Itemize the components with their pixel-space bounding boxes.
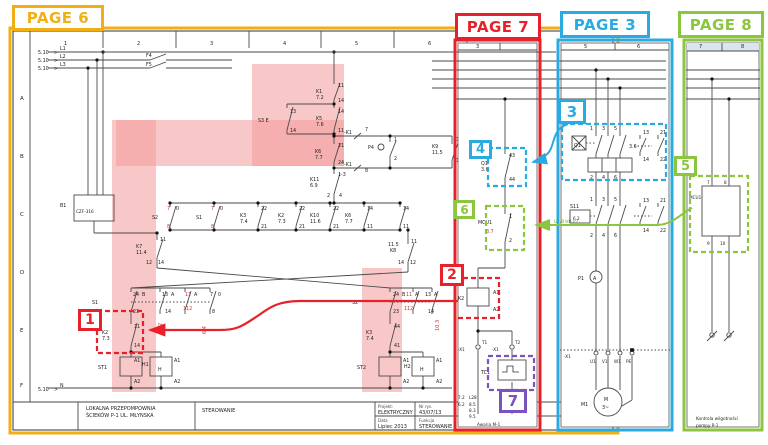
schematic-label: 6 [428, 41, 431, 47]
schematic-label: A1 [403, 358, 409, 364]
schematic-label: 3 [476, 44, 479, 50]
junction-dot [332, 102, 335, 105]
callout-7: 7 [499, 389, 527, 413]
schematic-label: 13 [290, 109, 296, 115]
schematic-label: 7.4 [366, 336, 374, 342]
schematic-label: 14 [290, 128, 296, 134]
schematic-label: 0 [176, 206, 179, 212]
schematic-label: -X1 [492, 347, 499, 352]
schematic-label: K5 [316, 116, 322, 122]
schematic-label: E [20, 328, 24, 334]
callout-6: 6 [454, 200, 475, 219]
junction-dot [168, 201, 171, 204]
schematic-label: 6 [637, 44, 640, 50]
schematic-label: 3 [210, 41, 213, 47]
schematic-label: 13 [643, 198, 649, 204]
schematic-label: A2 [403, 379, 409, 385]
junction-dot [212, 201, 215, 204]
schematic-label: 6.9 [310, 183, 318, 189]
schematic-label: 6 [614, 233, 617, 239]
schematic-label: A2 [174, 379, 180, 385]
schematic-label: 8 [167, 224, 170, 230]
schematic-label: K1 [316, 89, 322, 95]
schematic-label: 0 [218, 292, 221, 298]
schematic-label: K7 [136, 244, 142, 250]
schematic-label: Kontrola wilgotności [696, 416, 738, 421]
pe-tap-dot [630, 348, 634, 352]
schematic-label: 43/07/13 [419, 410, 441, 416]
highlight-band [362, 268, 402, 392]
junction-dot [606, 77, 609, 80]
schematic-label: S11 [570, 204, 579, 210]
schematic-label: 24 [393, 292, 399, 298]
schematic-label: 13 [162, 292, 168, 298]
annotated-schematic-screenshot: 5.10>L15.10>L25.10>L3F4F5B1CZF-31611K17.… [0, 0, 768, 445]
schematic-label: 1-3 [338, 172, 346, 178]
schematic-label: 23 [393, 309, 399, 315]
schematic-label: K9 [432, 144, 438, 150]
callout-2: 2 [440, 264, 464, 286]
schematic-label: 22 [261, 206, 267, 212]
schematic-label: 1 [64, 41, 67, 47]
schematic-label: B [402, 292, 405, 298]
schematic-label: 1 [394, 137, 397, 143]
schematic-label: > [54, 66, 58, 72]
junction-dot [155, 231, 158, 234]
junction-dot [710, 77, 713, 80]
schematic-label: L3 [60, 62, 66, 68]
schematic-label: 5 [614, 126, 617, 132]
junction-dot [388, 134, 391, 137]
junction-dot [362, 228, 365, 231]
callout-3: 3 [558, 99, 586, 124]
schematic-label: > [54, 50, 58, 56]
schematic-label: S3 E [258, 118, 269, 124]
junction-dot [332, 134, 335, 137]
schematic-label: -K1 [344, 162, 352, 168]
schematic-label: F5 [146, 62, 152, 68]
schematic-label: 21 [261, 224, 267, 230]
schematic-label: 11 [406, 292, 412, 298]
junction-dot [594, 68, 597, 71]
schematic-label: 12 [146, 260, 152, 266]
schematic-label: 0 [220, 206, 223, 212]
schematic-label: A1 [174, 358, 180, 364]
schematic-label: 7 [707, 180, 710, 185]
schematic-label: K2 [458, 296, 464, 302]
schematic-label: 14 [367, 206, 373, 212]
junction-dot [618, 86, 621, 89]
schematic-label: STEROWANIE [419, 424, 452, 430]
schematic-label: pompy P-1 [696, 423, 719, 428]
schematic-label: Projekt: [378, 404, 393, 409]
schematic-label: 7.3 [278, 219, 286, 225]
schematic-label: 7 [211, 206, 214, 212]
schematic-label: 2 [509, 238, 512, 244]
schematic-label: 14 [165, 309, 171, 315]
schematic-label: 7.3 [102, 336, 110, 342]
schematic-label: 22 [299, 206, 305, 212]
schematic-label: Lipiec 2013 [378, 424, 407, 430]
schematic-label: 7 [365, 127, 368, 133]
schematic-label: M [604, 397, 608, 403]
schematic-label: 7.4 [240, 219, 248, 225]
junction-dot [256, 201, 259, 204]
callout-5: 5 [674, 156, 697, 176]
schematic-label: 8 [741, 44, 744, 50]
schematic-label: 14 [158, 260, 164, 266]
schematic-label: 7.7 [315, 155, 323, 161]
schematic-label: D [20, 270, 24, 276]
schematic-label: Q1 [574, 143, 581, 149]
schematic-label: PE [626, 359, 632, 364]
schematic-label: P4 [368, 145, 374, 151]
schematic-label: 4 [339, 193, 342, 199]
schematic-label: ELEKTRYCZNY [378, 410, 414, 416]
schematic-label: 11 [338, 83, 344, 89]
schematic-label: 9 [707, 241, 710, 246]
junction-dot [328, 201, 331, 204]
schematic-label: 7.2 [458, 395, 465, 400]
schematic-label: 44 [509, 177, 515, 183]
schematic-label: M1 [581, 402, 588, 408]
schematic-label: 21 [299, 224, 305, 230]
schematic-label: W1 [614, 359, 621, 364]
schematic-label: > [54, 387, 58, 393]
schematic-label: K3 [366, 330, 372, 336]
schematic-label: 2 [590, 233, 593, 239]
schematic-label: 13 [425, 292, 431, 298]
schematic-label: 8 [724, 180, 727, 185]
schematic-label: 11 [411, 239, 417, 245]
schematic-label: K3 [240, 213, 246, 219]
junction-dot [129, 386, 132, 389]
schematic-label: 1 [590, 126, 593, 132]
schematic-label: L2 [60, 54, 66, 60]
schematic-label: 8 [212, 309, 215, 315]
schematic-label: 44 [394, 324, 400, 330]
junction-dot [332, 201, 335, 204]
schematic-label: 14 [643, 157, 649, 163]
schematic-label: H1 [142, 362, 149, 368]
page-column-backgrounds [458, 43, 759, 427]
schematic-label: A2 [436, 379, 442, 385]
schematic-label: ŚCIEKÓW P-1 UL. MŁYNSKA [86, 412, 154, 419]
schematic-label: 2 [327, 193, 330, 199]
schematic-label: F4 [146, 53, 152, 59]
schematic-label: ST2 [357, 365, 366, 371]
schematic-label: 10.2 [158, 323, 164, 334]
schematic-label: 21 [660, 198, 666, 204]
schematic-label: > [54, 58, 58, 64]
schematic-label: 22 [333, 206, 339, 212]
contact-blade [390, 141, 396, 156]
column-sheet [458, 43, 537, 427]
schematic-label: A1 [134, 358, 140, 364]
schematic-label: 3 [602, 197, 605, 203]
schematic-label: 9.5 [469, 414, 476, 419]
schematic-label: A [20, 96, 24, 102]
schematic-label: 14 [398, 260, 404, 266]
schematic-label: 8.5 [469, 402, 476, 407]
page-tab-7: PAGE 7 [455, 13, 541, 40]
schematic-label: Nr rys. [419, 404, 432, 409]
callout-1: 1 [78, 309, 102, 331]
schematic-label: 7 [210, 292, 213, 298]
schematic-label: H2 [404, 364, 411, 370]
schematic-label: 14 [403, 206, 409, 212]
schematic-canvas: 5.10>L15.10>L25.10>L3F4F5B1CZF-31611K17.… [0, 0, 768, 445]
schematic-label: H [420, 367, 424, 373]
schematic-label: 112 [183, 306, 192, 312]
schematic-label: 11.5 [388, 242, 399, 248]
junction-dot [294, 201, 297, 204]
schematic-label: K8 [390, 248, 396, 254]
schematic-label: 5.10 [38, 58, 49, 64]
schematic-label: S1 [92, 300, 98, 306]
schematic-label: 8 [211, 224, 214, 230]
schematic-label: 7 [167, 206, 170, 212]
schematic-label: 3~ [602, 405, 609, 411]
schematic-label: F [20, 383, 23, 389]
schematic-label: 14 [643, 228, 649, 234]
schematic-label: B [20, 154, 24, 160]
schematic-label: 3 [602, 126, 605, 132]
schematic-label: K2 [102, 330, 108, 336]
junction-dot [328, 228, 331, 231]
junction-dot [294, 228, 297, 231]
schematic-label: 8 [365, 168, 368, 174]
schematic-label: 2 [137, 41, 140, 47]
schematic-label: 41 [394, 343, 400, 349]
schematic-label: 5 [584, 44, 587, 50]
schematic-label: K11 [310, 177, 319, 183]
schematic-label: 7.6 [316, 122, 324, 128]
schematic-label: 43 [509, 153, 515, 159]
schematic-label: S2 [152, 215, 158, 221]
junction-dot [398, 228, 401, 231]
junction-dot [95, 58, 98, 61]
junction-dot [421, 386, 424, 389]
schematic-label: 14 [134, 343, 140, 349]
schematic-label: -X1 [564, 354, 571, 359]
callout-4: 4 [469, 140, 492, 159]
schematic-label: 11 [403, 224, 409, 230]
schematic-label: 11 [134, 324, 140, 330]
junction-dot [503, 97, 506, 100]
highlight-band [112, 120, 156, 392]
schematic-label: 11.6 [310, 219, 321, 225]
schematic-label: 14 [338, 109, 344, 115]
junction-dot [476, 329, 479, 332]
junction-dot [727, 97, 730, 100]
junction-dot [256, 228, 259, 231]
schematic-label: 13 [643, 130, 649, 136]
schematic-label: A [171, 292, 175, 298]
schematic-label: 12 [410, 260, 416, 266]
junction-dot [332, 166, 335, 169]
schematic-label: 24 [133, 292, 139, 298]
schematic-label: 1 [509, 214, 512, 220]
schematic-label: 4 [283, 41, 286, 47]
schematic-label: Funkcja [419, 418, 435, 423]
schematic-label: 21 [333, 224, 339, 230]
schematic-label: 2 [394, 156, 397, 162]
schematic-label: B [142, 292, 145, 298]
schematic-label: -K1 [344, 130, 352, 136]
schematic-label: 5 [355, 41, 358, 47]
junction-dot [362, 201, 365, 204]
junction-dot [398, 201, 401, 204]
schematic-label: 8.7 [486, 229, 494, 235]
junction-dot [86, 66, 89, 69]
schematic-label: V1 [602, 359, 608, 364]
highlight-path [112, 64, 402, 392]
schematic-label: 5.10 [38, 387, 49, 393]
schematic-label: T1 [481, 340, 488, 345]
schematic-label: C [20, 212, 24, 218]
page-tab-6: PAGE 6 [12, 5, 104, 31]
junction-dot [388, 386, 391, 389]
schematic-label: 7 [699, 44, 702, 50]
schematic-label: L28 [469, 395, 477, 400]
schematic-label: 11 [185, 292, 191, 298]
schematic-label: 22 [660, 228, 666, 234]
schematic-label: K10 [310, 213, 319, 219]
schematic-label: Q1 [481, 161, 488, 167]
schematic-label: T2 [514, 340, 521, 345]
schematic-label: K6 [345, 213, 351, 219]
column-header-band [687, 43, 759, 51]
schematic-label: H [158, 367, 162, 373]
schematic-label: A [194, 292, 198, 298]
schematic-label: K6 [315, 149, 321, 155]
component-box [74, 195, 114, 221]
schematic-label: ST1 [98, 365, 107, 371]
junction-dot [388, 350, 391, 353]
schematic-label: 3.6 [629, 144, 637, 150]
schematic-label: N [60, 383, 64, 389]
page-tab-8: PAGE 8 [678, 11, 764, 38]
schematic-label: -X1 [458, 347, 465, 352]
schematic-label: 21 [338, 143, 344, 149]
schematic-label: 14 [428, 309, 434, 315]
junction-dot [388, 166, 391, 169]
schematic-label: Data [378, 418, 388, 423]
schematic-label: 6.2 [458, 402, 465, 407]
component-circle [378, 144, 384, 150]
schematic-label: 7.7 [345, 219, 353, 225]
schematic-generated-layers: 5.10>L15.10>L25.10>L3F4F5B1CZF-31611K17.… [10, 28, 762, 433]
component-box [412, 357, 434, 376]
schematic-label: 10.3 [435, 320, 441, 331]
schematic-label: P1 [578, 276, 584, 282]
schematic-label: 5.10 [38, 50, 49, 56]
schematic-label: 11.4 [136, 250, 147, 256]
schematic-label: 4 [602, 233, 605, 239]
schematic-label: Awaria M-1 [477, 422, 501, 427]
schematic-label: 7.2 [316, 95, 324, 101]
schematic-label: B1 [60, 203, 66, 209]
schematic-label: 5 [614, 197, 617, 203]
schematic-label: A1 [436, 358, 442, 364]
cross-reference-arrow [150, 301, 458, 330]
schematic-label: 11 [160, 237, 166, 243]
schematic-label: K2 [278, 213, 284, 219]
schematic-label: STEROWANIE [202, 408, 235, 414]
schematic-label: A2 [134, 379, 140, 385]
junction-dot [159, 386, 162, 389]
schematic-label: 1 [590, 197, 593, 203]
schematic-label: 11.5 [432, 150, 443, 156]
schematic-label: 10 [720, 241, 726, 246]
schematic-label: 5.10 [38, 66, 49, 72]
schematic-label: 8.3 [469, 408, 476, 413]
schematic-label: 14 [338, 98, 344, 104]
page-tab-3: PAGE 3 [560, 11, 650, 38]
schematic-label: CZF-316 [76, 209, 94, 214]
schematic-label: LOKALNA PRZEPOMPOWNIA [86, 406, 156, 412]
contact-blade [408, 243, 414, 262]
schematic-label: S1 [196, 215, 202, 221]
schematic-label: 4 [602, 175, 605, 181]
schematic-label: 112 [404, 306, 413, 312]
schematic-label: U1 [590, 359, 596, 364]
schematic-label: 11 [367, 224, 373, 230]
